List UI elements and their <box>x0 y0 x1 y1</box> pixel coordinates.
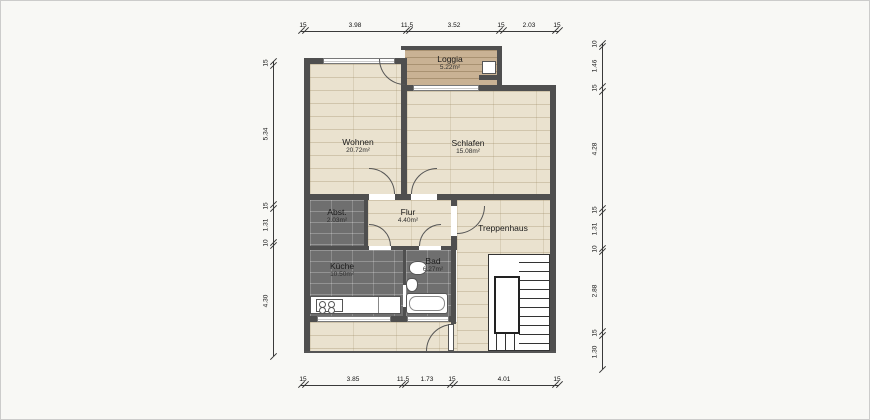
dimension-value: 15 <box>299 22 306 29</box>
dimension-tick <box>270 353 277 360</box>
room-label-bad: Bad 6.27m² <box>423 257 443 274</box>
loggia-wall-step <box>479 75 502 80</box>
room-name: Wohnen <box>342 138 374 147</box>
room-area: 5.22m² <box>437 64 463 72</box>
room-area: 20.72m² <box>342 147 374 155</box>
bathtub-inner <box>409 296 445 311</box>
wohnen-door-opening <box>369 194 395 200</box>
staircase-well <box>494 276 520 334</box>
loggia-pillar <box>482 61 496 74</box>
dimension-value: 15 <box>553 22 560 29</box>
bad-door-opening <box>419 246 441 250</box>
room-name: Küche <box>330 262 354 271</box>
room-name: Treppenhaus <box>478 224 528 233</box>
room-area: 2.03m² <box>327 217 347 225</box>
staircase-treads-right <box>519 254 550 351</box>
room-label-loggia: Loggia 5.22m² <box>437 55 463 72</box>
dimension-value: 15 <box>592 206 599 213</box>
dimension-value: 10 <box>592 245 599 252</box>
room-name: Bad <box>423 257 443 266</box>
dimension-value: 1.73 <box>421 376 434 383</box>
exterior-wall-right <box>550 85 556 353</box>
dimension-value: 15 <box>497 22 504 29</box>
room-name: Flur <box>398 208 418 217</box>
dimension-value: 1.31 <box>263 219 270 232</box>
dimension-line-top <box>301 31 559 32</box>
dimension-value: 4.30 <box>263 295 270 308</box>
room-label-kueche: Küche 10.50m² <box>330 262 354 279</box>
floorplan-canvas: Loggia 5.22m² Wohnen 20.72m² Schlafen 15… <box>0 0 870 420</box>
counter-divider <box>378 297 379 313</box>
kueche-door-opening <box>369 246 391 250</box>
dimension-value: 15 <box>299 376 306 383</box>
dimension-value: 4.01 <box>498 376 511 383</box>
wall-abstellraum-right <box>364 200 368 246</box>
room-label-abstellraum: Abst. 2.03m² <box>327 208 347 225</box>
toilet <box>406 278 418 292</box>
room-label-wohnen: Wohnen 20.72m² <box>342 138 374 155</box>
room-label-flur: Flur 4.40m² <box>398 208 418 225</box>
wall-bad-treppenhaus <box>451 250 456 316</box>
room-label-treppenhaus: Treppenhaus <box>478 224 528 233</box>
dimension-value: 4.28 <box>592 143 599 156</box>
dimension-value: 11.5 <box>397 376 409 383</box>
room-area: 10.50m² <box>330 271 354 279</box>
dimension-value: 3.85 <box>347 376 360 383</box>
corridor-wall-stub <box>451 316 456 324</box>
schlafen-loggia-window <box>413 85 479 91</box>
dimension-value: 15 <box>553 376 560 383</box>
dimension-value: 10 <box>263 239 270 246</box>
room-area: 4.40m² <box>398 217 418 225</box>
corridor-bottom-line <box>304 351 556 353</box>
dimension-value: 15 <box>263 202 270 209</box>
dimension-value: 11.5 <box>401 22 413 29</box>
wohnen-floor <box>310 64 401 194</box>
dimension-value: 1.46 <box>592 60 599 73</box>
dimension-tick <box>599 366 606 373</box>
dimension-line-bottom <box>301 385 559 386</box>
room-name: Abst. <box>327 208 347 217</box>
corridor-door-leaf <box>448 324 454 351</box>
dimension-value: 3.52 <box>448 22 461 29</box>
stove-burner <box>328 307 335 314</box>
dimension-value: 3.98 <box>349 22 362 29</box>
kueche-window <box>317 316 391 322</box>
bad-window <box>407 316 449 322</box>
dimension-value: 1.30 <box>592 346 599 359</box>
dimension-value: 15 <box>263 59 270 66</box>
room-name: Schlafen <box>451 139 484 148</box>
dimension-value: 15 <box>592 329 599 336</box>
dimension-value: 2.03 <box>523 22 536 29</box>
room-area: 6.27m² <box>423 266 443 274</box>
room-name: Loggia <box>437 55 463 64</box>
dimension-value: 2.88 <box>592 285 599 298</box>
dimension-value: 1.31 <box>592 223 599 236</box>
schlafen-door-opening <box>411 194 437 200</box>
room-area: 15.08m² <box>451 148 484 156</box>
loggia-wall-top <box>401 46 502 50</box>
stove-burner <box>319 307 326 314</box>
dimension-value: 10 <box>592 40 599 47</box>
room-label-schlafen: Schlafen 15.08m² <box>451 139 484 156</box>
dimension-value: 15 <box>448 376 455 383</box>
dimension-value: 15 <box>592 84 599 91</box>
dimension-value: 5.34 <box>263 128 270 141</box>
